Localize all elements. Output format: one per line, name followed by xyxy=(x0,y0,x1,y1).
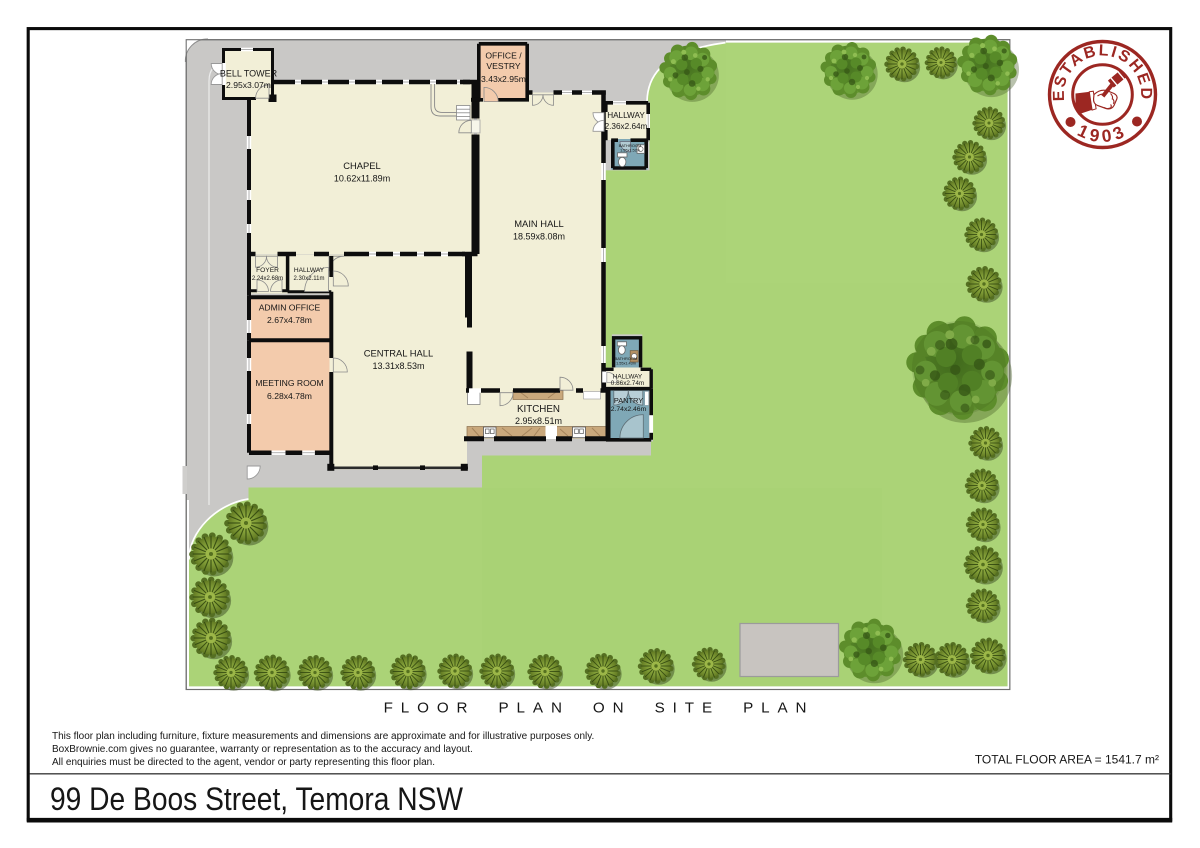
svg-text:VESTRY: VESTRY xyxy=(486,61,520,71)
svg-text:6.28x4.78m: 6.28x4.78m xyxy=(267,391,312,401)
svg-text:FOYER: FOYER xyxy=(256,267,279,274)
svg-text:TOTAL FLOOR AREA = 1541.7 m²: TOTAL FLOOR AREA = 1541.7 m² xyxy=(975,753,1159,767)
svg-text:This floor plan including furn: This floor plan including furniture, fix… xyxy=(52,731,594,742)
svg-text:CHAPEL: CHAPEL xyxy=(343,160,381,171)
svg-text:BoxBrownie.com gives no guaran: BoxBrownie.com gives no guarantee, warra… xyxy=(52,744,473,755)
svg-text:2.24x2.68m: 2.24x2.68m xyxy=(252,276,283,282)
svg-text:2.36x2.64m: 2.36x2.64m xyxy=(605,122,648,131)
svg-text:CENTRAL HALL: CENTRAL HALL xyxy=(364,348,433,359)
svg-text:BATHROOM: BATHROOM xyxy=(619,143,642,148)
svg-text:13.31x8.53m: 13.31x8.53m xyxy=(372,361,424,371)
svg-text:1.55x1.52m: 1.55x1.52m xyxy=(620,149,640,153)
svg-text:18.59x8.08m: 18.59x8.08m xyxy=(513,232,565,242)
svg-text:HALLWAY: HALLWAY xyxy=(607,111,645,120)
svg-text:OFFICE /: OFFICE / xyxy=(485,51,522,61)
svg-text:2.67x4.78m: 2.67x4.78m xyxy=(267,315,312,325)
svg-text:All enquiries must be directed: All enquiries must be directed to the ag… xyxy=(52,757,435,768)
svg-text:2.95x3.07m: 2.95x3.07m xyxy=(226,80,271,90)
svg-text:HALLWAY: HALLWAY xyxy=(294,267,325,274)
svg-text:MAIN HALL: MAIN HALL xyxy=(514,218,564,229)
svg-text:2.30x2.11m: 2.30x2.11m xyxy=(294,276,325,282)
svg-text:KITCHEN: KITCHEN xyxy=(517,404,560,415)
svg-text:3.43x2.95m: 3.43x2.95m xyxy=(481,74,526,84)
svg-text:10.62x11.89m: 10.62x11.89m xyxy=(334,174,390,184)
svg-text:2.74x2.46m: 2.74x2.46m xyxy=(611,406,647,413)
svg-text:ADMIN OFFICE: ADMIN OFFICE xyxy=(259,303,321,313)
svg-text:BATHROOM: BATHROOM xyxy=(615,356,638,361)
svg-text:1.55x1.43m: 1.55x1.43m xyxy=(616,361,636,365)
svg-text:0.86x2.74m: 0.86x2.74m xyxy=(611,380,644,387)
svg-text:MEETING ROOM: MEETING ROOM xyxy=(255,378,323,388)
svg-text:FLOOR PLAN ON SITE PLAN: FLOOR PLAN ON SITE PLAN xyxy=(384,700,815,717)
svg-text:99 De Boos Street, Temora NSW: 99 De Boos Street, Temora NSW xyxy=(50,781,463,817)
svg-text:PANTRY: PANTRY xyxy=(614,396,643,405)
svg-text:2.95x8.51m: 2.95x8.51m xyxy=(515,416,562,426)
svg-text:BELL TOWER: BELL TOWER xyxy=(220,69,278,79)
